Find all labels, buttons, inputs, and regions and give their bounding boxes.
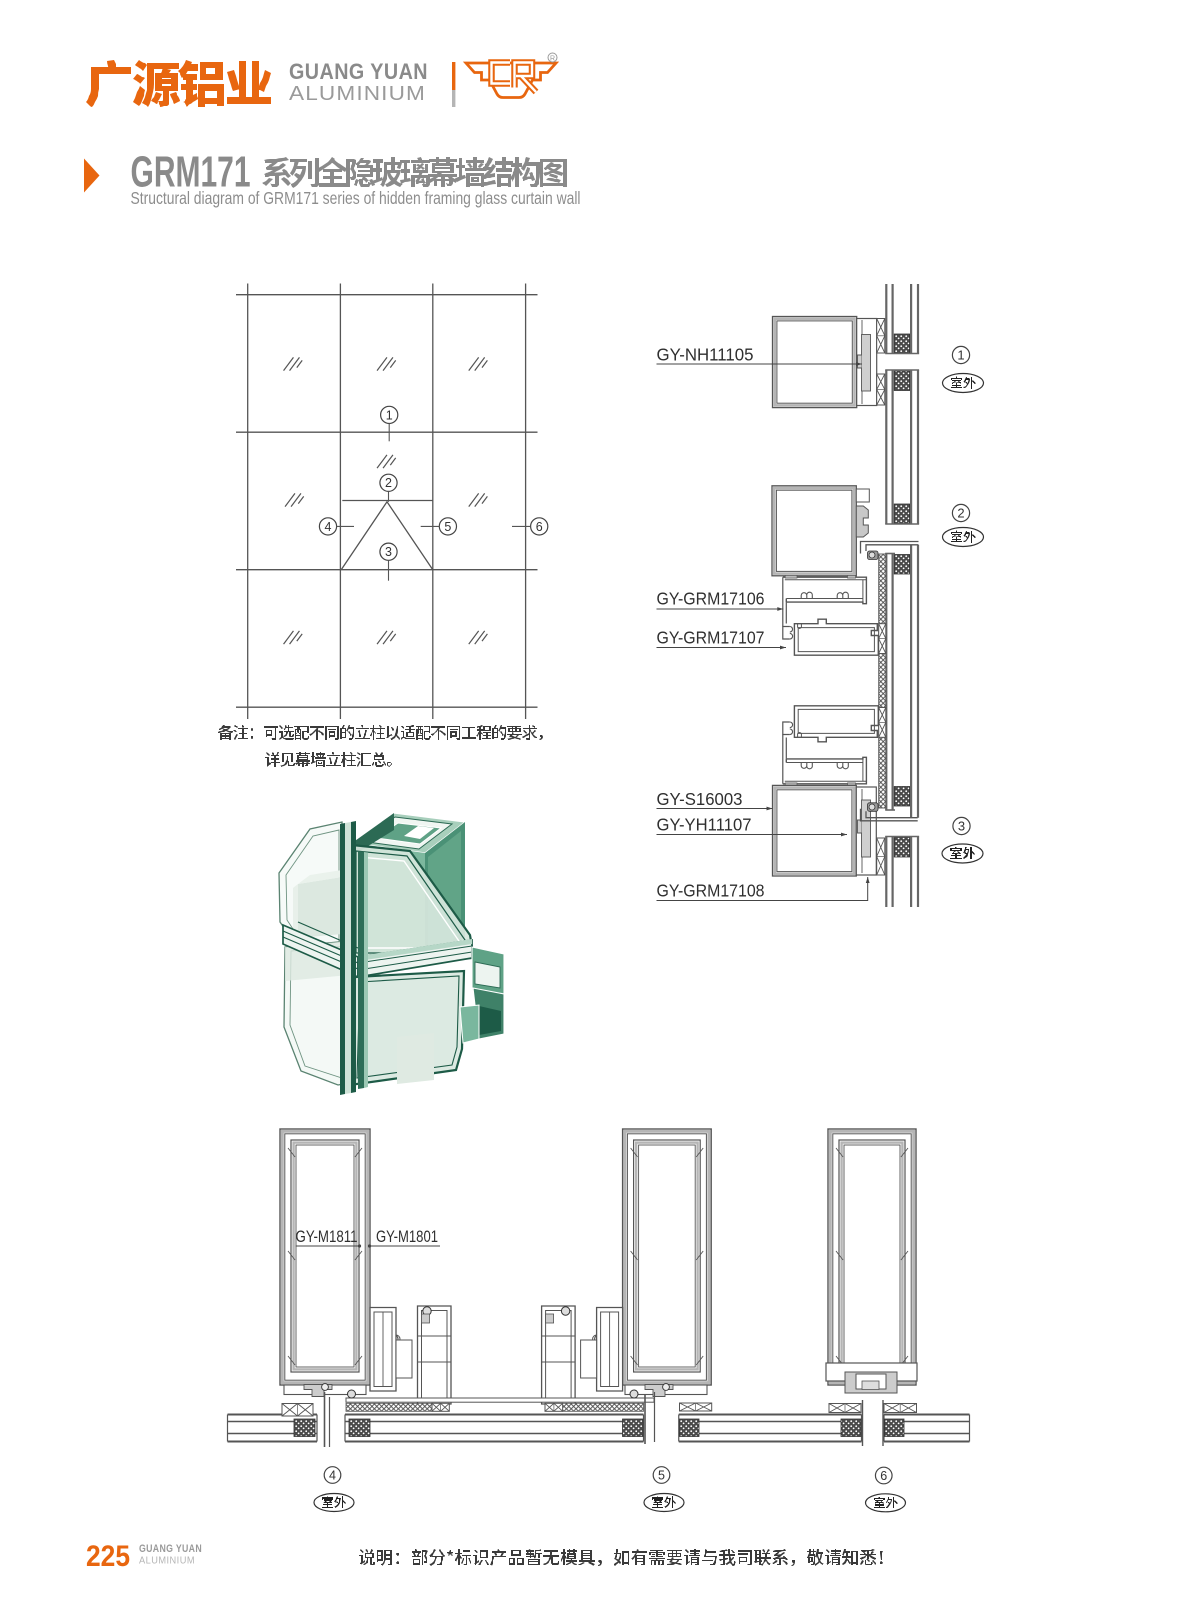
svg-text:225: 225: [86, 1540, 130, 1573]
svg-text:2: 2: [385, 476, 392, 490]
svg-text:6: 6: [536, 520, 543, 534]
svg-text:1: 1: [957, 348, 964, 363]
svg-text:6: 6: [880, 1469, 887, 1483]
svg-text:5: 5: [658, 1468, 665, 1482]
svg-text:3: 3: [958, 819, 965, 834]
svg-text:GY-GRM17107: GY-GRM17107: [657, 628, 765, 648]
svg-text:Structural diagram of GRM171: Structural diagram of GRM171 series of h…: [131, 188, 581, 208]
svg-text:4: 4: [325, 520, 332, 534]
svg-text:GUANG YUAN: GUANG YUAN: [289, 59, 428, 84]
svg-text:GUANG YUAN: GUANG YUAN: [139, 1543, 202, 1555]
svg-text:GY-GRM17108: GY-GRM17108: [657, 881, 765, 901]
svg-text:GY-S16003: GY-S16003: [657, 789, 743, 809]
svg-text:2: 2: [957, 506, 964, 521]
svg-text:GY-YH11107: GY-YH11107: [657, 815, 752, 835]
svg-text:GY-M1801: GY-M1801: [376, 1228, 438, 1246]
svg-text:ALUMINIUM: ALUMINIUM: [289, 83, 426, 105]
svg-text:4: 4: [329, 1468, 336, 1482]
svg-text:ALUMINIUM: ALUMINIUM: [139, 1556, 195, 1567]
svg-text:GY-GRM17106: GY-GRM17106: [657, 589, 765, 609]
svg-text:R: R: [550, 56, 555, 63]
svg-text:5: 5: [444, 520, 451, 534]
svg-text:1: 1: [386, 408, 393, 422]
svg-text:GY-M1811: GY-M1811: [296, 1228, 358, 1246]
svg-text:GY-NH11105: GY-NH11105: [657, 345, 754, 365]
svg-text:3: 3: [385, 545, 392, 559]
